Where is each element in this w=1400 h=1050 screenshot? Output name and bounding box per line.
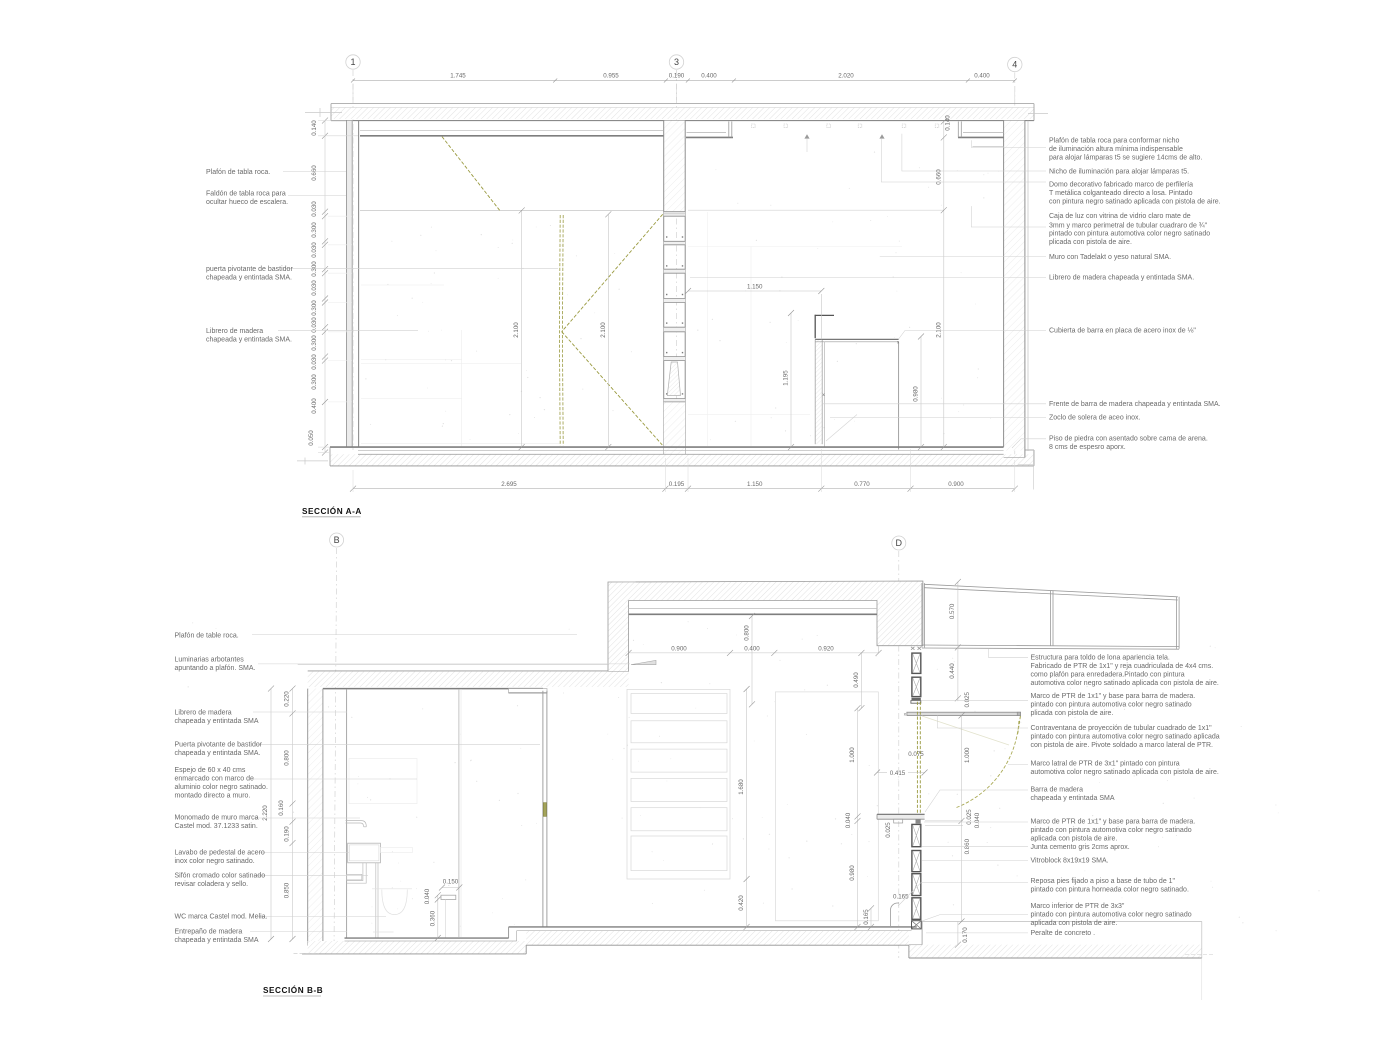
svg-text:Librero de madera chapeada y e: Librero de madera chapeada y entintada S…: [1049, 275, 1194, 282]
svg-text:0.360: 0.360: [430, 910, 437, 926]
svg-text:Luminarias arbotantes: Luminarias arbotantes: [175, 657, 245, 664]
svg-text:0.920: 0.920: [818, 645, 834, 652]
svg-text:Monomado de muro marca: Monomado de muro marca: [175, 814, 259, 821]
svg-text:0.660: 0.660: [311, 165, 318, 181]
svg-text:pintado con pintura automotiva: pintado con pintura automotiva color neg…: [1031, 912, 1192, 919]
svg-text:0.220: 0.220: [284, 691, 291, 707]
svg-text:1.745: 1.745: [450, 73, 466, 80]
svg-text:4: 4: [1012, 60, 1017, 70]
svg-text:Marco inferior de PTR de 3x3": Marco inferior de PTR de 3x3": [1031, 903, 1125, 910]
svg-text:Cubierta de barra en placa de: Cubierta de barra en placa de acero inox…: [1049, 328, 1196, 335]
svg-text:Zoclo de solera de aceo inox.: Zoclo de solera de aceo inox.: [1049, 415, 1140, 422]
svg-text:0.420: 0.420: [738, 895, 745, 911]
svg-text:0.190: 0.190: [284, 826, 291, 842]
svg-text:montado directo a muro.: montado directo a muro.: [175, 793, 251, 800]
svg-text:Piso de piedra con asentado so: Piso de piedra con asentado sobre cama d…: [1049, 436, 1208, 443]
svg-text:2.100: 2.100: [513, 322, 520, 338]
svg-text:1.000: 1.000: [964, 747, 971, 763]
svg-text:Nicho de iluminación para aloj: Nicho de iluminación para alojar lámpara…: [1049, 168, 1189, 175]
svg-text:0.140: 0.140: [945, 115, 952, 131]
svg-text:SECCIÓN B-B: SECCIÓN B-B: [263, 984, 323, 995]
svg-text:D: D: [896, 538, 903, 548]
svg-text:Lavabo de pedestal de acero: Lavabo de pedestal de acero: [175, 849, 265, 856]
svg-text:0.490: 0.490: [853, 672, 860, 688]
svg-text:chapeada y entintada SMA.: chapeada y entintada SMA.: [206, 275, 292, 282]
svg-text:0.025: 0.025: [964, 691, 971, 707]
svg-text:T metálica colganteado directo: T metálica colganteado directo a losa. P…: [1049, 190, 1193, 197]
svg-text:Domo decorativo fabricado marc: Domo decorativo fabricado marco de perfi…: [1049, 182, 1193, 189]
svg-text:0.195: 0.195: [669, 481, 685, 488]
svg-text:0.030: 0.030: [311, 242, 318, 258]
svg-text:Plafón de table roca.: Plafón de table roca.: [175, 633, 239, 640]
svg-text:Plafón de tabla roca.: Plafón de tabla roca.: [206, 169, 270, 176]
svg-text:0.300: 0.300: [311, 300, 318, 316]
svg-text:Marco latral de PTR de 3x1" pi: Marco latral de PTR de 3x1" pintado con …: [1031, 761, 1180, 768]
svg-text:0.300: 0.300: [311, 374, 318, 390]
svg-text:Entrepaño de madera: Entrepaño de madera: [175, 929, 243, 936]
svg-text:chapeada y entintada SMA: chapeada y entintada SMA: [175, 937, 259, 944]
svg-text:automotiva color negro satinad: automotiva color negro satinado aplicada…: [1031, 769, 1219, 776]
svg-text:2.020: 2.020: [838, 73, 854, 80]
svg-text:Faldón de tabla roca para: Faldón de tabla roca para: [206, 190, 286, 197]
svg-text:0.030: 0.030: [311, 280, 318, 296]
svg-text:0.800: 0.800: [744, 625, 751, 641]
svg-text:enmarcado con marco de: enmarcado con marco de: [175, 776, 254, 783]
svg-text:0.400: 0.400: [701, 73, 717, 80]
svg-text:aplicada con pistola de aire.: aplicada con pistola de aire.: [1031, 836, 1118, 843]
svg-text:chapeada y entintada SMA.: chapeada y entintada SMA.: [175, 750, 261, 757]
svg-text:Librero de madera: Librero de madera: [175, 709, 232, 716]
svg-text:1.680: 1.680: [738, 779, 745, 795]
svg-text:pintado con pintura automotiva: pintado con pintura automotiva color neg…: [1031, 827, 1192, 834]
svg-text:0.190: 0.190: [669, 73, 685, 80]
svg-text:Sifón cromado color satinado: Sifón cromado color satinado: [175, 872, 266, 879]
svg-text:como plafón para enredadera.Pi: como plafón para enredadera.Pintado con …: [1031, 671, 1185, 678]
svg-text:Barra de madera: Barra de madera: [1031, 787, 1084, 794]
svg-text:Contraventana de proyección de: Contraventana de proyección de tubular c…: [1031, 725, 1213, 732]
svg-text:0.040: 0.040: [974, 812, 981, 828]
svg-text:Marco de PTR de 1x1" y base pa: Marco de PTR de 1x1" y base para barra d…: [1031, 693, 1196, 700]
svg-text:con pintura negro satinado apl: con pintura negro satinado aplicada con …: [1049, 199, 1221, 206]
svg-text:0.980: 0.980: [849, 865, 856, 881]
svg-text:0.800: 0.800: [284, 750, 291, 766]
svg-text:pintado con pintura horneada c: pintado con pintura horneada color negro…: [1031, 887, 1189, 894]
svg-text:SECCIÓN A-A: SECCIÓN A-A: [302, 505, 362, 516]
svg-text:3mm y marco perimetral de tubu: 3mm y marco perimetral de tubular cuadra…: [1049, 223, 1208, 230]
svg-text:0.160: 0.160: [278, 800, 285, 816]
svg-text:0.050: 0.050: [308, 430, 315, 446]
svg-text:WC marca Castel mod. Melia.: WC marca Castel mod. Melia.: [175, 913, 268, 920]
svg-text:0.400: 0.400: [311, 398, 318, 414]
svg-text:0.025: 0.025: [885, 822, 892, 838]
svg-text:B: B: [334, 535, 340, 545]
svg-text:Vitroblock 8x19x19 SMA.: Vitroblock 8x19x19 SMA.: [1031, 858, 1109, 865]
svg-text:0.150: 0.150: [443, 879, 459, 886]
svg-text:0.770: 0.770: [854, 481, 870, 488]
svg-text:0.040: 0.040: [424, 888, 431, 904]
svg-text:1: 1: [350, 57, 355, 67]
svg-text:Reposa pies fijado a piso a ba: Reposa pies fijado a piso a base de tubo…: [1031, 878, 1176, 885]
svg-text:0.955: 0.955: [603, 73, 619, 80]
svg-text:0.570: 0.570: [949, 603, 956, 619]
svg-text:aluminio color negro satinado.: aluminio color negro satinado.: [175, 784, 268, 791]
svg-text:pintado con pintura automotiva: pintado con pintura automotiva color neg…: [1031, 734, 1220, 741]
svg-text:plicada con pistola de aire.: plicada con pistola de aire.: [1049, 239, 1132, 246]
svg-text:0.300: 0.300: [311, 335, 318, 351]
svg-text:aplicada con pistola de aire.: aplicada con pistola de aire.: [1031, 920, 1118, 927]
svg-text:Peralte de concreto .: Peralte de concreto .: [1031, 930, 1096, 937]
svg-text:0.400: 0.400: [974, 73, 990, 80]
svg-text:Estructura para toldo de lona: Estructura para toldo de lona apariencia…: [1031, 654, 1170, 661]
svg-text:1.195: 1.195: [783, 370, 790, 386]
svg-text:inox color negro satinado.: inox color negro satinado.: [175, 858, 255, 865]
svg-text:0.170: 0.170: [962, 927, 969, 943]
svg-text:para alojar lámparas t5 se sug: para alojar lámparas t5 se sugiere 14cms…: [1049, 154, 1202, 161]
svg-text:0.300: 0.300: [311, 261, 318, 277]
svg-text:0.400: 0.400: [744, 645, 760, 652]
svg-text:0.440: 0.440: [949, 663, 956, 679]
svg-text:3: 3: [674, 57, 679, 67]
svg-text:Junta cemento gris 2cms aprox.: Junta cemento gris 2cms aprox.: [1031, 844, 1130, 851]
svg-text:con pistola de aire. Pivote so: con pistola de aire. Pivote soldado a ma…: [1031, 742, 1214, 749]
svg-text:8 cms de espesro aporx.: 8 cms de espesro aporx.: [1049, 444, 1126, 451]
svg-text:0.300: 0.300: [311, 222, 318, 238]
svg-text:2.695: 2.695: [501, 481, 517, 488]
svg-text:1.000: 1.000: [849, 747, 856, 763]
svg-text:chapeada y entintada SMA.: chapeada y entintada SMA.: [206, 337, 292, 344]
svg-text:0.140: 0.140: [311, 120, 318, 136]
svg-text:1.150: 1.150: [747, 284, 763, 291]
svg-text:Plafón de tabla roca para conf: Plafón de tabla roca para conformar nich…: [1049, 137, 1179, 144]
svg-text:chapeada y entintada SMA: chapeada y entintada SMA: [1031, 795, 1115, 802]
svg-text:automotiva color negro satinad: automotiva color negro satinado aplicada…: [1031, 680, 1219, 687]
svg-text:0.030: 0.030: [311, 354, 318, 370]
svg-text:Muro con Tadelakt o yeso natur: Muro con Tadelakt o yeso natural SMA.: [1049, 254, 1171, 261]
svg-text:Caja de luz con vitrina de vid: Caja de luz con vitrina de vidrio claro …: [1049, 213, 1191, 220]
svg-text:0.075: 0.075: [908, 751, 924, 758]
svg-text:0.415: 0.415: [890, 770, 906, 777]
svg-text:puerta pivotante de bastidor: puerta pivotante de bastidor: [206, 266, 293, 273]
svg-text:0.850: 0.850: [284, 882, 291, 898]
svg-text:Frente de barra de madera chap: Frente de barra de madera chapeada y ent…: [1049, 401, 1221, 408]
svg-text:1.150: 1.150: [747, 481, 763, 488]
svg-text:Espejo de 60 x 40 cms: Espejo de 60 x 40 cms: [175, 767, 246, 774]
svg-text:0.025: 0.025: [966, 809, 973, 825]
svg-text:Marco de PTR de 1x1" y base pa: Marco de PTR de 1x1" y base para barra d…: [1031, 819, 1196, 826]
svg-text:0.030: 0.030: [311, 201, 318, 217]
svg-text:0.900: 0.900: [671, 645, 687, 652]
svg-text:Fabricado de PTR de 1x1" y rej: Fabricado de PTR de 1x1" y reja cuadricu…: [1031, 663, 1214, 670]
svg-text:0.860: 0.860: [964, 838, 971, 854]
svg-text:0.040: 0.040: [845, 812, 852, 828]
svg-text:ocultar hueco de escalera.: ocultar hueco de escalera.: [206, 199, 288, 206]
svg-text:Librero de madera: Librero de madera: [206, 328, 263, 335]
svg-text:0.165: 0.165: [863, 909, 870, 925]
svg-text:0.900: 0.900: [948, 481, 964, 488]
svg-text:chapeada y entintada SMA: chapeada y entintada SMA: [175, 718, 259, 725]
svg-text:apuntando a plafón. SMA.: apuntando a plafón. SMA.: [175, 665, 256, 672]
svg-text:2.100: 2.100: [600, 322, 607, 338]
svg-text:0.980: 0.980: [913, 386, 920, 402]
svg-text:2.220: 2.220: [262, 805, 269, 821]
svg-text:plicada con pistola de aire.: plicada con pistola de aire.: [1031, 710, 1114, 717]
svg-text:Castel mod. 37.1233 satin.: Castel mod. 37.1233 satin.: [175, 823, 258, 830]
svg-text:revisar coladera y sello.: revisar coladera y sello.: [175, 881, 249, 888]
svg-text:Puerta pivotante de bastidor: Puerta pivotante de bastidor: [175, 741, 263, 748]
svg-text:pintado con pintura automotiva: pintado con pintura automotiva color neg…: [1049, 231, 1210, 238]
svg-text:pintado con pintura automotiva: pintado con pintura automotiva color neg…: [1031, 702, 1192, 709]
svg-text:de iluminación altura mínima i: de iluminación altura mínima indispensab…: [1049, 146, 1183, 153]
svg-text:2.100: 2.100: [935, 322, 942, 338]
